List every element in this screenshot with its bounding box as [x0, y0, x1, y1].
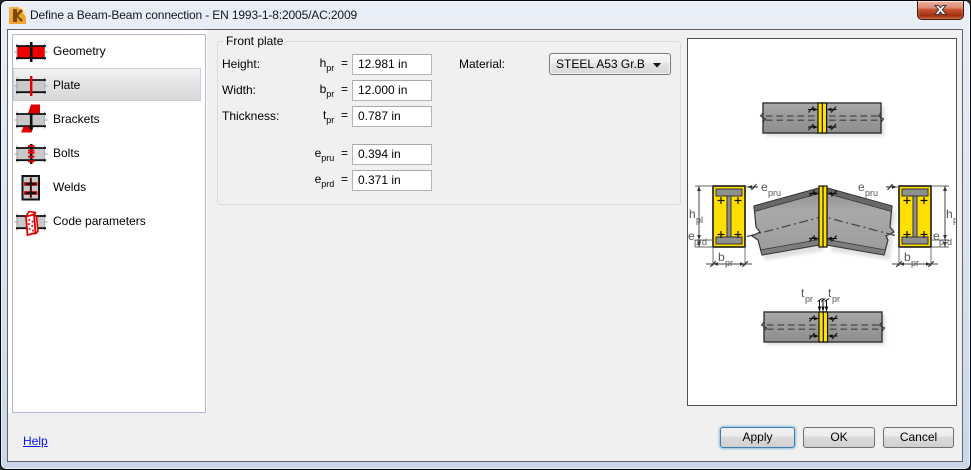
- svg-text:h: h: [689, 207, 696, 221]
- svg-text:pr: pr: [725, 258, 733, 268]
- svg-text:pr: pr: [911, 258, 919, 268]
- svg-text:pl: pl: [696, 215, 703, 225]
- svg-text:pru: pru: [768, 188, 781, 198]
- svg-text:e: e: [858, 180, 865, 194]
- svg-text:b: b: [718, 250, 725, 264]
- svg-text:h: h: [946, 207, 953, 221]
- svg-text:pr: pr: [953, 215, 956, 225]
- svg-text:pru: pru: [865, 188, 878, 198]
- svg-text:prd: prd: [939, 237, 952, 247]
- svg-text:pr: pr: [832, 294, 840, 304]
- svg-text:e: e: [761, 180, 768, 194]
- svg-text:b: b: [904, 250, 911, 264]
- svg-text:pr: pr: [805, 294, 813, 304]
- svg-text:prd: prd: [694, 237, 707, 247]
